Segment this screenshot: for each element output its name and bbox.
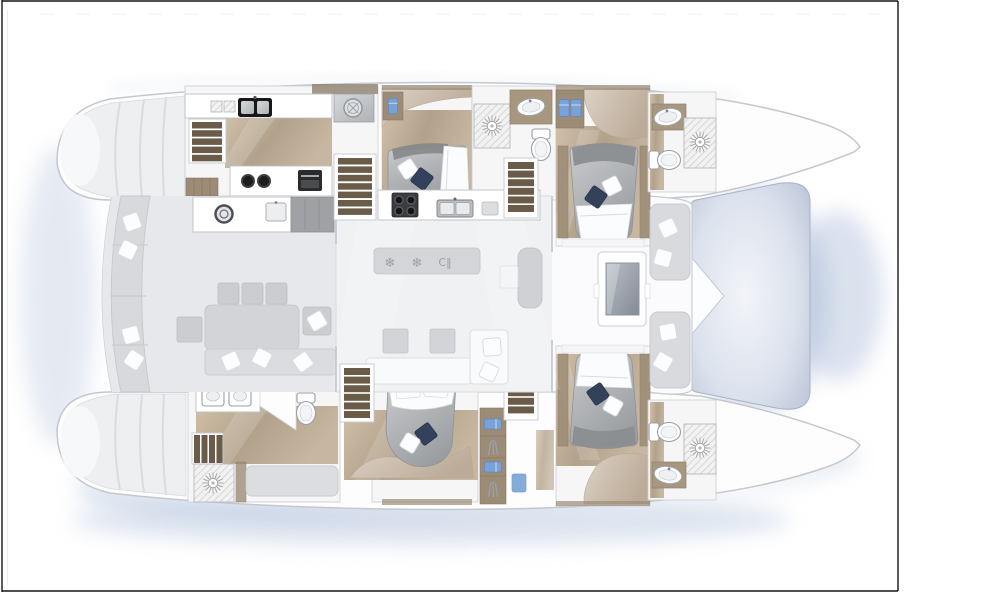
small-steps	[192, 433, 223, 464]
shower	[474, 104, 510, 148]
toilet-icon	[649, 423, 681, 442]
double-bed	[386, 380, 456, 467]
end-seat	[303, 307, 331, 335]
wine-rack-icon: C‖	[438, 256, 451, 269]
foot-bench	[562, 345, 644, 353]
grill-icon	[216, 206, 233, 223]
catamaran-floorplan: ❄ ❄ C‖	[0, 0, 985, 593]
galley-top-cabinet	[312, 84, 378, 94]
shower-drain-icon	[690, 438, 711, 459]
toilet-icon	[649, 151, 681, 170]
shower-drain-icon	[482, 116, 503, 137]
nav-table	[500, 266, 518, 288]
ottoman	[430, 329, 455, 353]
starboard-aft-bathroom	[188, 376, 340, 502]
port-forward-cabin	[548, 85, 650, 247]
dining-table	[205, 305, 299, 350]
port-bow-bathroom	[648, 92, 716, 192]
saloon-skylight	[594, 252, 650, 326]
oven-icon	[298, 170, 322, 191]
island-double-sink-icon	[437, 198, 473, 218]
bath-mat	[512, 474, 526, 492]
bathroom-bench	[246, 466, 338, 496]
saloon: ❄ ❄ C‖	[330, 154, 560, 422]
shower	[684, 118, 716, 168]
shower-drain-icon	[690, 132, 711, 153]
cooktop-icon	[392, 193, 418, 217]
freezer-icon: ❄	[385, 256, 396, 271]
chair	[218, 283, 239, 304]
sunpad-port	[650, 204, 690, 280]
galley-double-sink-icon	[238, 96, 272, 117]
shower	[194, 464, 234, 502]
towel-icon	[559, 100, 569, 117]
towel-icon	[389, 98, 398, 113]
shower-drain-icon	[203, 473, 224, 494]
galley-entry-stairs	[189, 119, 226, 163]
towel-icon	[485, 462, 502, 472]
nav-seat	[518, 248, 542, 308]
towel-icon	[485, 419, 502, 429]
chair	[242, 283, 263, 304]
wardrobe	[556, 90, 584, 128]
outdoor-galley	[193, 197, 334, 232]
washing-machine-icon	[334, 94, 374, 122]
appliance-icon	[211, 101, 222, 112]
toilet-icon	[532, 129, 551, 161]
starboard-bow-bathroom	[648, 400, 716, 500]
aft-cockpit	[102, 196, 336, 392]
appliance-icon	[224, 101, 235, 112]
wardrobe	[383, 92, 403, 120]
stairwell-starboard-aft	[340, 364, 374, 422]
fridge-icon: ❄	[412, 256, 423, 271]
towel-icon	[571, 100, 581, 117]
bed-side-rail	[558, 354, 568, 446]
appliance-icon	[482, 202, 498, 215]
chair	[266, 283, 287, 304]
toilet-icon	[297, 393, 316, 425]
shower	[684, 424, 716, 474]
stairwell-port-aft	[334, 154, 376, 220]
cockpit-sink-icon	[266, 201, 286, 221]
stairwell-port-forward	[504, 158, 538, 218]
ottoman	[383, 329, 408, 353]
port-mid-cabin	[382, 85, 472, 198]
bed-side-rail	[558, 146, 568, 238]
double-bed	[570, 143, 638, 246]
side-table	[177, 317, 202, 342]
cockpit-cabinet	[291, 197, 334, 232]
fridge-freezer-unit: ❄ ❄ C‖	[374, 248, 480, 274]
galley-shelf	[186, 178, 218, 196]
double-bed	[570, 346, 638, 449]
foot-bench	[562, 239, 644, 247]
